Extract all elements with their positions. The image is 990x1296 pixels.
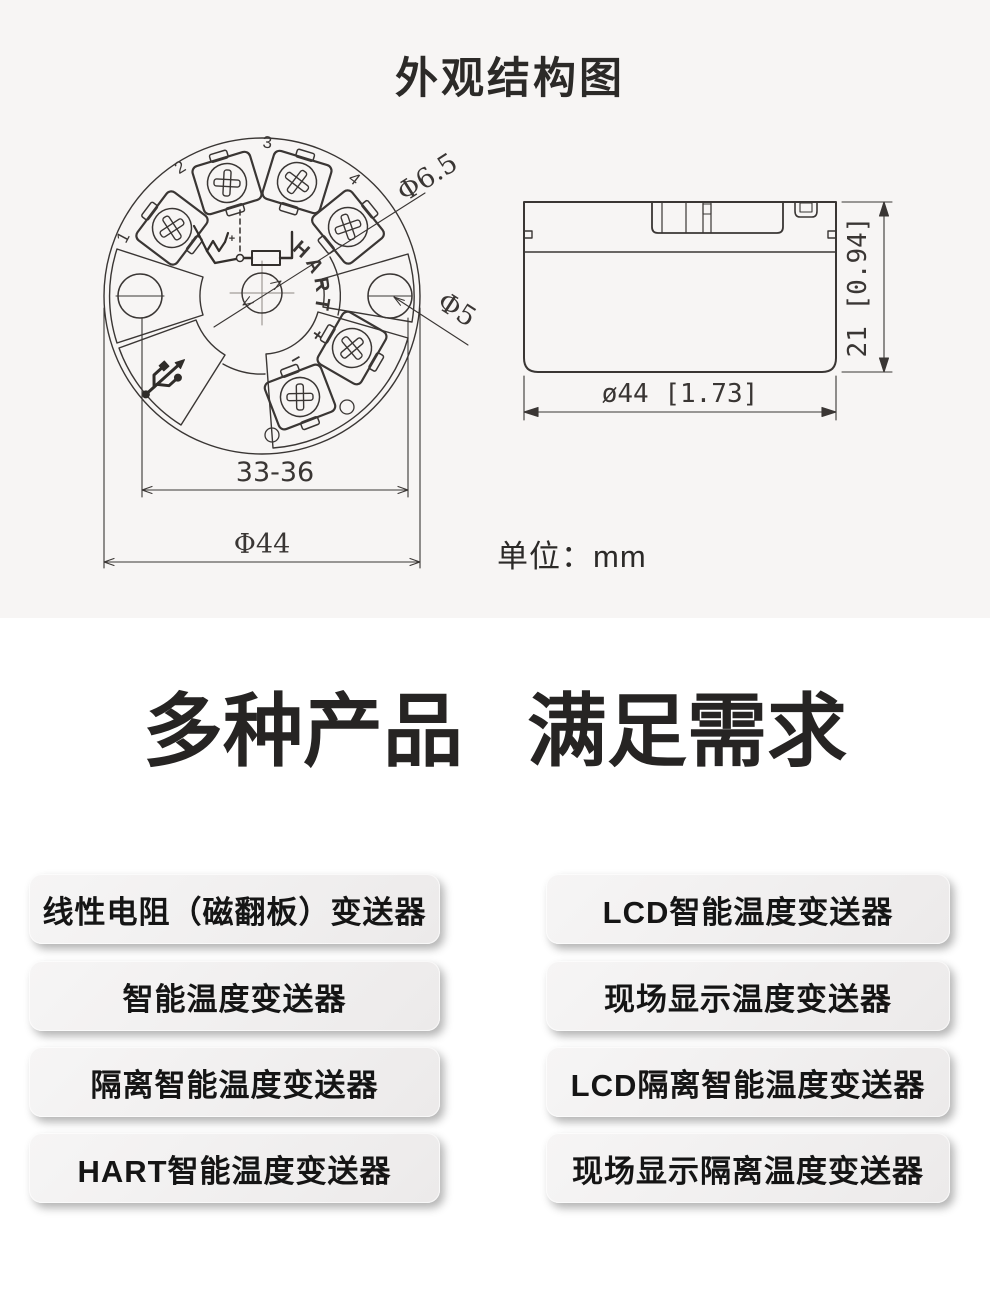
page: 外观结构图 xyxy=(0,0,990,1296)
wiring-plus-label: + xyxy=(229,233,235,245)
dim-hole-large-label: Φ6.5 xyxy=(392,147,464,208)
side-tab-small xyxy=(795,202,817,217)
terminal-3 xyxy=(259,143,335,222)
product-button-field-isolated[interactable]: 现场显示隔离温度变送器 xyxy=(546,1133,950,1203)
section-headline: 多种产品 满足需求 xyxy=(0,692,990,772)
right-hole-panel xyxy=(322,254,414,322)
wiring-schematic xyxy=(194,210,292,265)
right-mount-hole xyxy=(368,274,412,318)
unit-label: 单位：mm xyxy=(497,531,647,576)
product-button-smart-temp[interactable]: 智能温度变送器 xyxy=(29,961,440,1031)
terminal-5 xyxy=(309,306,394,390)
terminal-number-2: 2 xyxy=(171,157,189,178)
side-body-outline xyxy=(524,202,836,372)
dim-width-label: ø44 [1.73] xyxy=(602,379,759,409)
center-screw xyxy=(230,261,294,325)
product-button-hart-smart[interactable]: HART智能温度变送器 xyxy=(29,1133,440,1203)
product-button-isolated-smart[interactable]: 隔离智能温度变送器 xyxy=(29,1047,440,1117)
product-button-lcd-smart[interactable]: LCD智能温度变送器 xyxy=(546,874,950,944)
usb-icon xyxy=(135,350,193,406)
resistor-symbol xyxy=(252,251,280,265)
wiring-minus-label: - xyxy=(191,234,195,246)
structure-diagram: 1 2 3 4 - + HART + − 33-36 Φ44 Φ6.5 Φ5 xyxy=(0,0,990,618)
cavity-arc-bottom xyxy=(223,364,265,374)
side-tab-large xyxy=(652,202,783,233)
product-button-field-display[interactable]: 现场显示温度变送器 xyxy=(546,961,950,1031)
side-notch-left xyxy=(524,231,532,238)
terminal-number-1: 1 xyxy=(113,229,134,246)
headline-part1: 多种产品 xyxy=(143,692,463,772)
left-mount-hole xyxy=(116,274,164,318)
wire xyxy=(207,251,236,263)
sensor-symbol xyxy=(199,235,225,251)
terminal-1 xyxy=(128,185,215,271)
side-notch-right xyxy=(828,231,836,238)
dim-height-label: 21 [0.94] xyxy=(843,217,873,358)
product-button-linear-resistance[interactable]: 线性电阻（磁翻板）变送器 xyxy=(29,874,440,944)
terminal-number-4: 4 xyxy=(345,168,364,189)
headline-part2: 满足需求 xyxy=(527,692,847,772)
structure-diagram-section: 外观结构图 xyxy=(0,0,990,618)
alignment-hole-2 xyxy=(340,400,354,414)
dim-outer-diameter-label: Φ44 xyxy=(234,529,291,560)
wire-node xyxy=(237,255,244,262)
product-button-lcd-isolated[interactable]: LCD隔离智能温度变送器 xyxy=(546,1047,950,1117)
dim-span-label: 33-36 xyxy=(236,457,314,488)
terminal-number-3: 3 xyxy=(262,133,273,153)
